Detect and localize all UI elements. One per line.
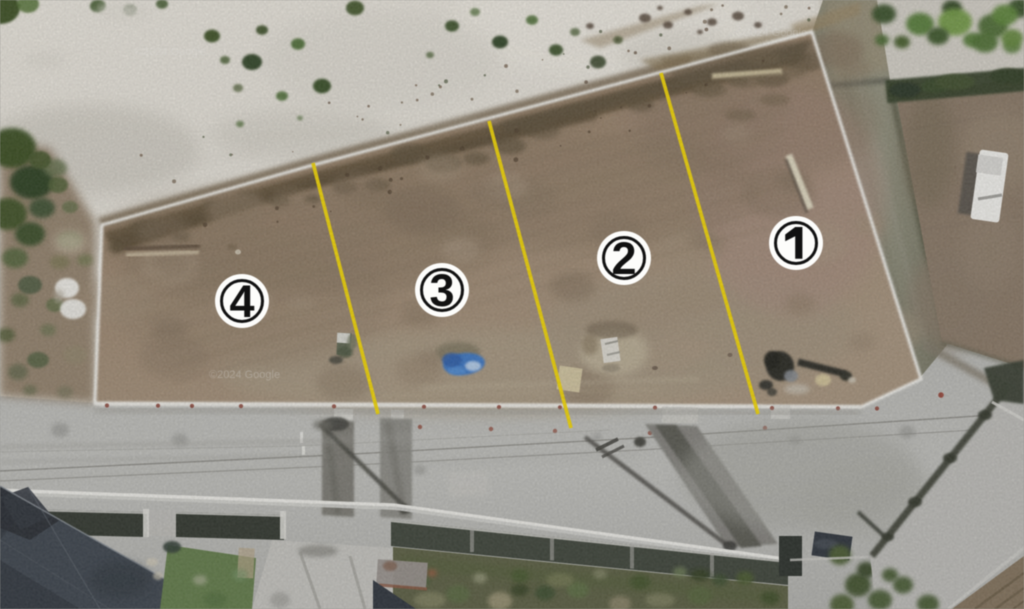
svg-text:2: 2 — [611, 233, 636, 284]
svg-text:3: 3 — [429, 265, 454, 316]
svg-text:4: 4 — [229, 276, 254, 327]
